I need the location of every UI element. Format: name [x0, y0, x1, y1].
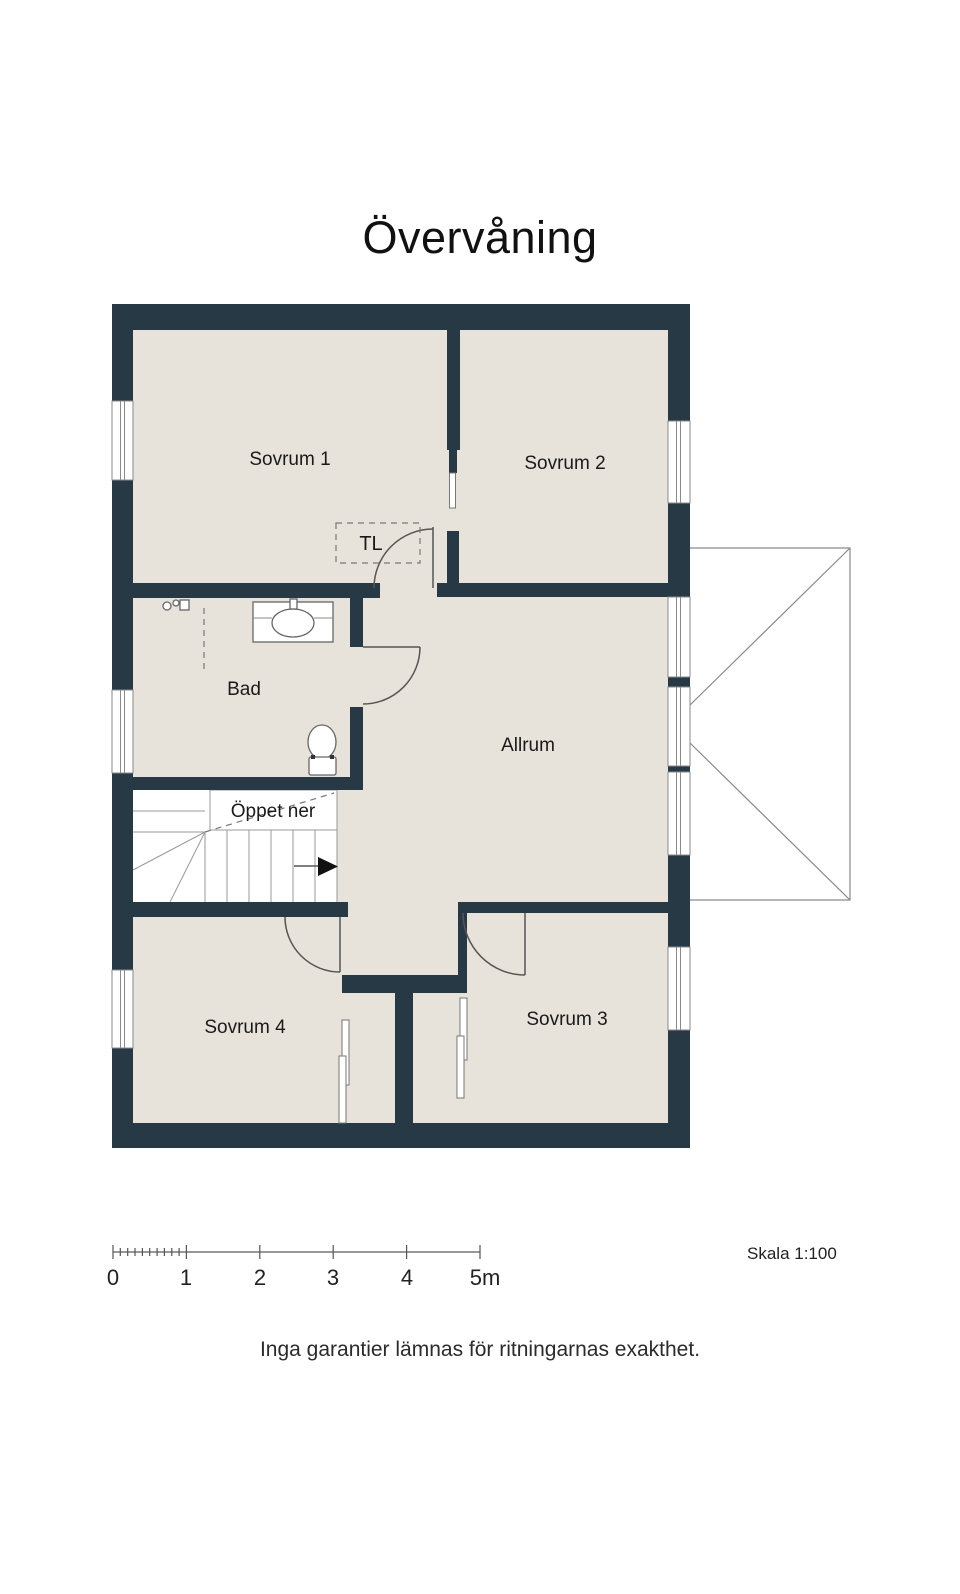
window-bad	[112, 690, 133, 773]
scale-bar: 0 1 2 3 4 5m	[107, 1245, 500, 1290]
scale-tick-label-1: 1	[180, 1265, 192, 1290]
valve-icon-1	[163, 602, 171, 610]
scale-tick-label-5: 5m	[470, 1265, 501, 1290]
wall-bad-right-lower	[350, 707, 363, 777]
wall-sovrum1-bad	[112, 583, 380, 598]
scale-tick-label-3: 3	[327, 1265, 339, 1290]
wall-sovrum4-sovrum3	[395, 993, 413, 1123]
label-sovrum4: Sovrum 4	[204, 1017, 286, 1038]
label-allrum: Allrum	[501, 735, 555, 756]
pocket-door-leaf	[450, 473, 456, 508]
window-allrum-3	[668, 772, 690, 855]
window-sovrum4	[112, 970, 133, 1048]
wall-bad-right-upper	[350, 598, 363, 647]
scale-tick-label-2: 2	[254, 1265, 266, 1290]
wall-sovrum1-sovrum2-stub	[447, 531, 459, 583]
scale-tick-label-0: 0	[107, 1265, 119, 1290]
wall-pocket-casing	[449, 450, 457, 473]
wall-stair-bottom	[112, 902, 348, 917]
wall-sovrum3-jamb	[458, 913, 467, 975]
valve-box-icon	[180, 600, 189, 610]
window-allrum-2	[668, 687, 690, 766]
sovrum3-wardrobe-slider-2	[457, 1036, 464, 1098]
wall-outer-top	[112, 304, 690, 330]
label-tl: TL	[359, 533, 382, 555]
scale-note: Skala 1:100	[747, 1244, 837, 1264]
wall-sovrum2-allrum	[437, 583, 668, 597]
wall-sovrum1-sovrum2-upper	[447, 330, 460, 450]
toilet-hinge-right	[330, 755, 334, 759]
wall-sovrum3-top	[458, 902, 668, 913]
floorplan-page: Övervåning	[0, 0, 960, 1594]
window-allrum-1	[668, 597, 690, 677]
wall-bad-bottom	[112, 777, 363, 790]
window-sovrum3	[668, 947, 690, 1030]
window-sovrum1	[112, 401, 133, 480]
wall-outer-bottom	[112, 1123, 690, 1148]
label-oppet-ner: Öppet ner	[231, 801, 316, 822]
scale-tick-label-4: 4	[401, 1265, 413, 1290]
toilet-bowl-icon	[308, 725, 336, 759]
sink-faucet-icon	[290, 599, 297, 609]
sink-basin-icon	[272, 609, 314, 637]
valve-icon-2	[173, 600, 179, 606]
disclaimer-text: Inga garantier lämnas för ritningarnas e…	[0, 1338, 960, 1362]
wall-closet-top	[342, 975, 467, 993]
label-bad: Bad	[227, 679, 261, 700]
sovrum4-wardrobe-slider-2	[339, 1056, 346, 1123]
toilet-hinge-left	[311, 755, 315, 759]
roof-outline	[690, 548, 850, 900]
label-sovrum1: Sovrum 1	[249, 449, 330, 470]
toilet-tank-icon	[309, 757, 336, 775]
label-sovrum3: Sovrum 3	[526, 1009, 607, 1030]
label-sovrum2: Sovrum 2	[524, 453, 605, 474]
window-sovrum2	[668, 421, 690, 503]
